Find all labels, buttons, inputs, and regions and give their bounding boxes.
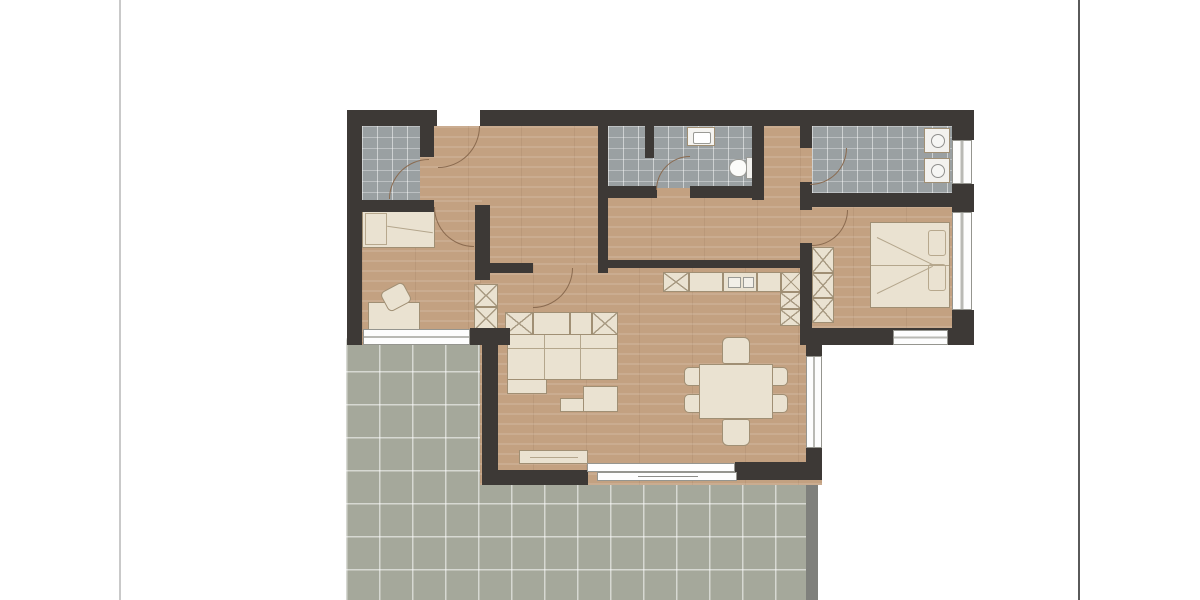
- floor-plan-scene: [0, 0, 1200, 600]
- wall-corridor-living: [608, 260, 800, 268]
- wall-hall-east: [598, 126, 608, 273]
- toilet-bowl: [729, 159, 747, 177]
- kitchen-counter-cell: [781, 272, 801, 292]
- bed-pillow: [928, 264, 946, 291]
- sofa: [507, 334, 618, 380]
- sliding-panel: [597, 472, 737, 481]
- stove-plate: [728, 277, 741, 288]
- wall-storage-east: [420, 126, 434, 157]
- sofa-cushion-line: [580, 335, 581, 379]
- wall-bath-south-right: [690, 186, 764, 198]
- stove-plate: [743, 277, 754, 288]
- kitchen-tall-unit: [780, 309, 801, 326]
- wall-bath-partition: [645, 126, 654, 158]
- tv-board: [519, 450, 588, 464]
- page-rule-left: [119, 0, 121, 600]
- sink-basin: [693, 132, 711, 144]
- sliding-handle-line: [638, 476, 698, 477]
- kitchen-sink-stove: [723, 272, 757, 292]
- bed-fold-line: [877, 237, 933, 265]
- wall-bedroom-west: [800, 243, 812, 345]
- wall-utility-west-upper: [800, 126, 812, 148]
- terrace-sliding-door: [587, 463, 737, 482]
- coffee-table-lower: [560, 398, 584, 412]
- office-cabinet: [474, 307, 498, 330]
- office-cabinet: [474, 284, 498, 307]
- wall-bath-south-left: [598, 186, 657, 198]
- bathroom-sink: [687, 127, 715, 146]
- sideboard-cell: [533, 312, 570, 335]
- kitchen-counter-cell: [663, 272, 689, 292]
- single-bed-pillow: [365, 213, 387, 245]
- page-rule-right: [1078, 0, 1080, 600]
- wall-top-main: [480, 110, 974, 126]
- bed-fold-line: [387, 226, 433, 233]
- kitchen-counter-cell: [757, 272, 781, 292]
- living-east-window: [806, 356, 822, 448]
- wall-living-east-bottom: [806, 448, 822, 470]
- wall-right-top: [952, 110, 974, 140]
- dining-table: [699, 364, 773, 419]
- kitchen-tall-unit: [780, 292, 801, 309]
- terrace-right-edge: [806, 480, 818, 600]
- wall-left: [347, 110, 362, 345]
- sideboard-cell: [592, 312, 618, 335]
- bed-pillow: [928, 230, 946, 256]
- wall-living-south-left: [482, 470, 588, 485]
- office-window: [363, 329, 470, 345]
- dryer-door-icon: [931, 164, 945, 178]
- wardrobe: [812, 247, 834, 273]
- sofa-chaise: [507, 379, 547, 394]
- dining-chair: [722, 337, 750, 364]
- wall-storage-south: [347, 200, 434, 212]
- bedroom-south-window: [893, 330, 948, 345]
- sliding-panel: [587, 463, 735, 472]
- single-bed: [362, 210, 435, 248]
- wall-living-west: [482, 330, 498, 485]
- double-bed: [870, 222, 950, 308]
- bed-fold-line: [877, 266, 933, 294]
- washer-door-icon: [931, 134, 945, 148]
- wall-bedroom-north: [800, 193, 974, 207]
- toilet: [729, 157, 754, 179]
- coffee-table: [583, 386, 618, 412]
- wardrobe: [812, 298, 834, 323]
- tv-board-line: [530, 457, 578, 458]
- bed-split-line: [871, 265, 949, 266]
- utility-window: [952, 140, 972, 184]
- sideboard-cell: [570, 312, 592, 335]
- sofa-back-line: [508, 348, 617, 349]
- washing-machine: [924, 128, 950, 153]
- wardrobe: [812, 273, 834, 298]
- dining-chair: [722, 419, 750, 446]
- sofa-cushion-line: [544, 335, 545, 379]
- kitchen-counter-cell: [689, 272, 723, 292]
- dryer: [924, 158, 950, 183]
- wall-hall-living: [475, 263, 533, 273]
- bedroom-east-window: [952, 212, 972, 310]
